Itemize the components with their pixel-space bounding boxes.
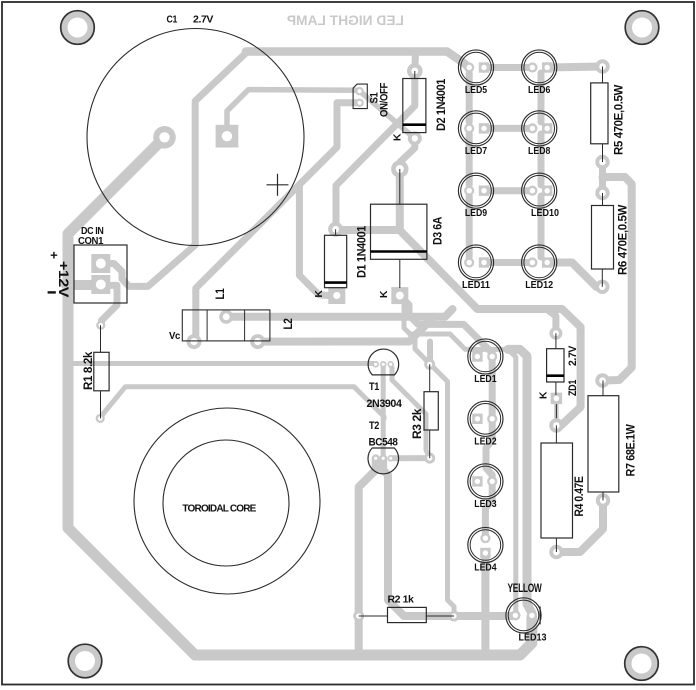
svg-text:LED6: LED6 (528, 84, 550, 96)
svg-text:LED13: LED13 (519, 632, 547, 644)
svg-text:L1: L1 (215, 288, 227, 300)
svg-text:CON1: CON1 (78, 236, 104, 247)
svg-text:T1: T1 (369, 381, 379, 393)
svg-text:ON/OFF: ON/OFF (379, 82, 391, 117)
svg-text:+12V: +12V (56, 261, 72, 298)
svg-text:2N3904: 2N3904 (367, 398, 403, 410)
svg-text:R5 470E,0.5W: R5 470E,0.5W (614, 84, 626, 155)
svg-text:R2 1k: R2 1k (388, 594, 415, 606)
svg-text:LED3: LED3 (474, 498, 496, 510)
svg-text:D1 1N4001: D1 1N4001 (357, 225, 369, 278)
svg-text:LED11: LED11 (462, 279, 490, 291)
svg-text:2.7V: 2.7V (193, 14, 213, 26)
svg-text:LED NIGHT LAMP: LED NIGHT LAMP (287, 12, 404, 28)
svg-text:2.7V: 2.7V (567, 345, 579, 366)
svg-text:TOROIDAL CORE: TOROIDAL CORE (182, 504, 256, 515)
svg-text:YELLOW: YELLOW (508, 583, 542, 595)
svg-text:T2: T2 (369, 420, 379, 432)
svg-text:BC548: BC548 (369, 437, 398, 449)
svg-text:K: K (378, 290, 390, 298)
svg-text:D2 1N4001: D2 1N4001 (436, 78, 448, 131)
svg-text:L2: L2 (283, 319, 295, 330)
svg-text:LED2: LED2 (474, 435, 496, 447)
svg-text:LED5: LED5 (465, 84, 487, 96)
svg-text:LED7: LED7 (465, 145, 487, 157)
svg-text:LED12: LED12 (525, 279, 553, 291)
svg-text:R7 68E.1W: R7 68E.1W (626, 424, 638, 477)
svg-text:+: + (50, 248, 58, 263)
svg-text:K: K (392, 133, 404, 141)
svg-text:LED4: LED4 (474, 562, 496, 574)
svg-text:R4 0.47E: R4 0.47E (574, 476, 586, 517)
svg-text:R3 2k: R3 2k (412, 408, 424, 439)
svg-text:R1 8.2k: R1 8.2k (83, 351, 95, 390)
svg-text:K: K (313, 290, 325, 298)
svg-text:C1: C1 (167, 14, 178, 26)
svg-text:LED1: LED1 (474, 373, 496, 385)
svg-text:D3 6A: D3 6A (433, 217, 445, 245)
svg-text:Vc: Vc (169, 331, 181, 342)
svg-text:LED9: LED9 (465, 207, 487, 219)
svg-text:LED8: LED8 (528, 145, 550, 157)
svg-text:K: K (538, 391, 550, 399)
svg-text:LED10: LED10 (531, 207, 559, 219)
svg-text:ZD1: ZD1 (567, 380, 579, 396)
svg-text:R6 470E,0.5W: R6 470E,0.5W (618, 204, 630, 275)
